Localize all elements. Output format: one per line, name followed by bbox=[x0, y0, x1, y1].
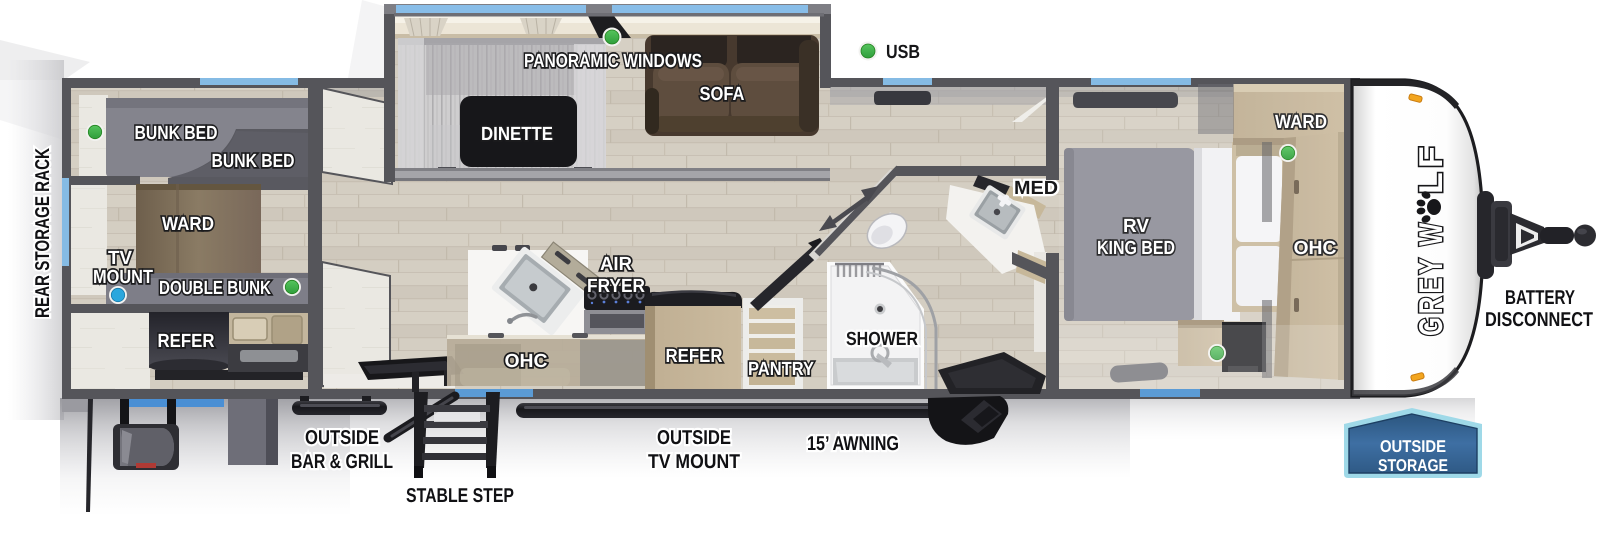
svg-text:PANORAMIC WINDOWS: PANORAMIC WINDOWS bbox=[524, 51, 702, 72]
svg-text:SHOWER: SHOWER bbox=[846, 329, 918, 350]
svg-text:AIR: AIR bbox=[600, 254, 632, 275]
svg-text:OUTSIDE: OUTSIDE bbox=[657, 427, 731, 449]
svg-text:TV: TV bbox=[108, 248, 132, 269]
svg-text:BAR & GRILL: BAR & GRILL bbox=[291, 451, 393, 473]
svg-text:BATTERY: BATTERY bbox=[1505, 287, 1575, 309]
svg-text:REAR STORAGE RACK: REAR STORAGE RACK bbox=[32, 148, 54, 318]
svg-text:WARD: WARD bbox=[162, 214, 214, 235]
svg-text:OHC: OHC bbox=[505, 351, 548, 372]
svg-text:REFER: REFER bbox=[158, 331, 215, 352]
svg-text:TV MOUNT: TV MOUNT bbox=[648, 451, 740, 473]
svg-text:DOUBLE BUNK: DOUBLE BUNK bbox=[159, 278, 271, 299]
svg-text:USB: USB bbox=[886, 42, 920, 63]
svg-text:15’ AWNING: 15’ AWNING bbox=[807, 433, 899, 455]
svg-text:MED: MED bbox=[1014, 178, 1058, 199]
svg-text:BUNK BED: BUNK BED bbox=[212, 151, 295, 172]
svg-text:DISCONNECT: DISCONNECT bbox=[1485, 309, 1593, 331]
svg-text:STABLE STEP: STABLE STEP bbox=[406, 485, 514, 507]
svg-text:OUTSIDE: OUTSIDE bbox=[1380, 437, 1446, 456]
svg-text:FRYER: FRYER bbox=[587, 276, 645, 297]
svg-text:MOUNT: MOUNT bbox=[93, 267, 153, 288]
svg-text:REFER: REFER bbox=[666, 346, 723, 367]
svg-text:DINETTE: DINETTE bbox=[481, 124, 553, 145]
svg-text:GREY W: GREY W bbox=[1412, 220, 1449, 336]
svg-text:BUNK BED: BUNK BED bbox=[135, 123, 218, 144]
svg-text:LF: LF bbox=[1412, 142, 1449, 194]
svg-text:SOFA: SOFA bbox=[700, 84, 745, 105]
svg-text:PANTRY: PANTRY bbox=[748, 359, 814, 380]
svg-text:STORAGE: STORAGE bbox=[1378, 456, 1448, 475]
svg-text:OUTSIDE: OUTSIDE bbox=[305, 427, 379, 449]
